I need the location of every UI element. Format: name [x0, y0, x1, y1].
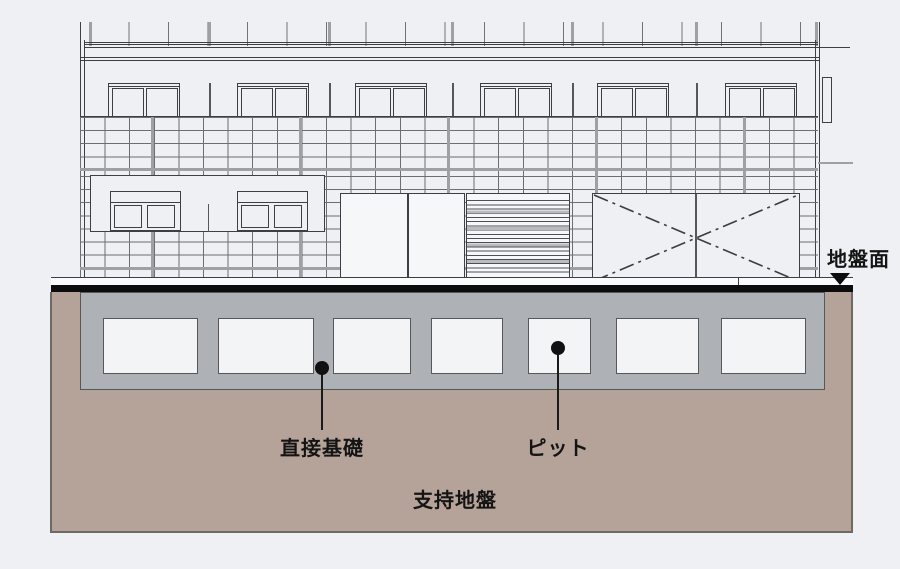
shutter-slats — [467, 197, 569, 275]
base-strip — [51, 277, 738, 285]
pit — [218, 318, 314, 374]
parapet-line — [80, 60, 820, 61]
upper-window-pair — [725, 83, 797, 116]
pit — [103, 318, 198, 374]
side-line — [818, 162, 853, 164]
pit — [431, 318, 503, 374]
label-pit: ピット — [488, 432, 628, 461]
upper-window-pair — [480, 83, 552, 116]
railing-rail — [84, 47, 818, 48]
panel-window — [237, 191, 308, 231]
facade-right-edge — [819, 22, 820, 285]
leader-dot-pit — [551, 341, 565, 355]
label-ground-surface: 地盤面 — [827, 243, 890, 272]
side-line — [818, 47, 850, 48]
label-direct-foundation: 直接基礎 — [252, 432, 392, 461]
railing-rail — [84, 42, 818, 43]
railing-rail — [84, 44, 818, 45]
ground-surface-line — [51, 285, 853, 292]
wall-joint — [572, 83, 574, 116]
parapet-line — [80, 57, 820, 58]
panel-joint — [208, 204, 209, 232]
wall-joint — [329, 83, 331, 116]
recessed-panel — [90, 175, 325, 232]
upper-window-pair — [108, 83, 180, 116]
wall-joint — [209, 83, 211, 116]
leader-dot-direct-foundation — [315, 361, 329, 375]
panel-divider — [695, 194, 697, 282]
upper-window-pair — [597, 83, 669, 116]
upper-window-pair — [355, 83, 427, 116]
cross-braced-panel — [592, 193, 800, 283]
label-bearing-stratum: 支持地盤 — [385, 484, 525, 513]
wall-joint — [452, 83, 454, 116]
pit — [721, 318, 806, 374]
wall-joint — [696, 83, 698, 116]
panel-window — [110, 191, 181, 231]
ground-level-marker-icon — [830, 273, 850, 285]
entrance-glass — [340, 193, 465, 278]
tile-joint — [80, 168, 818, 171]
leader-line-pit — [557, 348, 559, 430]
roller-shutter — [466, 193, 570, 278]
upper-window-pair — [237, 83, 309, 116]
side-box — [822, 77, 832, 123]
pit — [616, 318, 699, 374]
entrance-divider — [407, 194, 409, 279]
foundation-structure — [80, 292, 825, 390]
foundation-section-diagram: 直接基礎 ピット 支持地盤 地盤面 — [0, 0, 900, 569]
leader-line-direct-foundation — [321, 368, 323, 430]
pit — [333, 318, 411, 374]
